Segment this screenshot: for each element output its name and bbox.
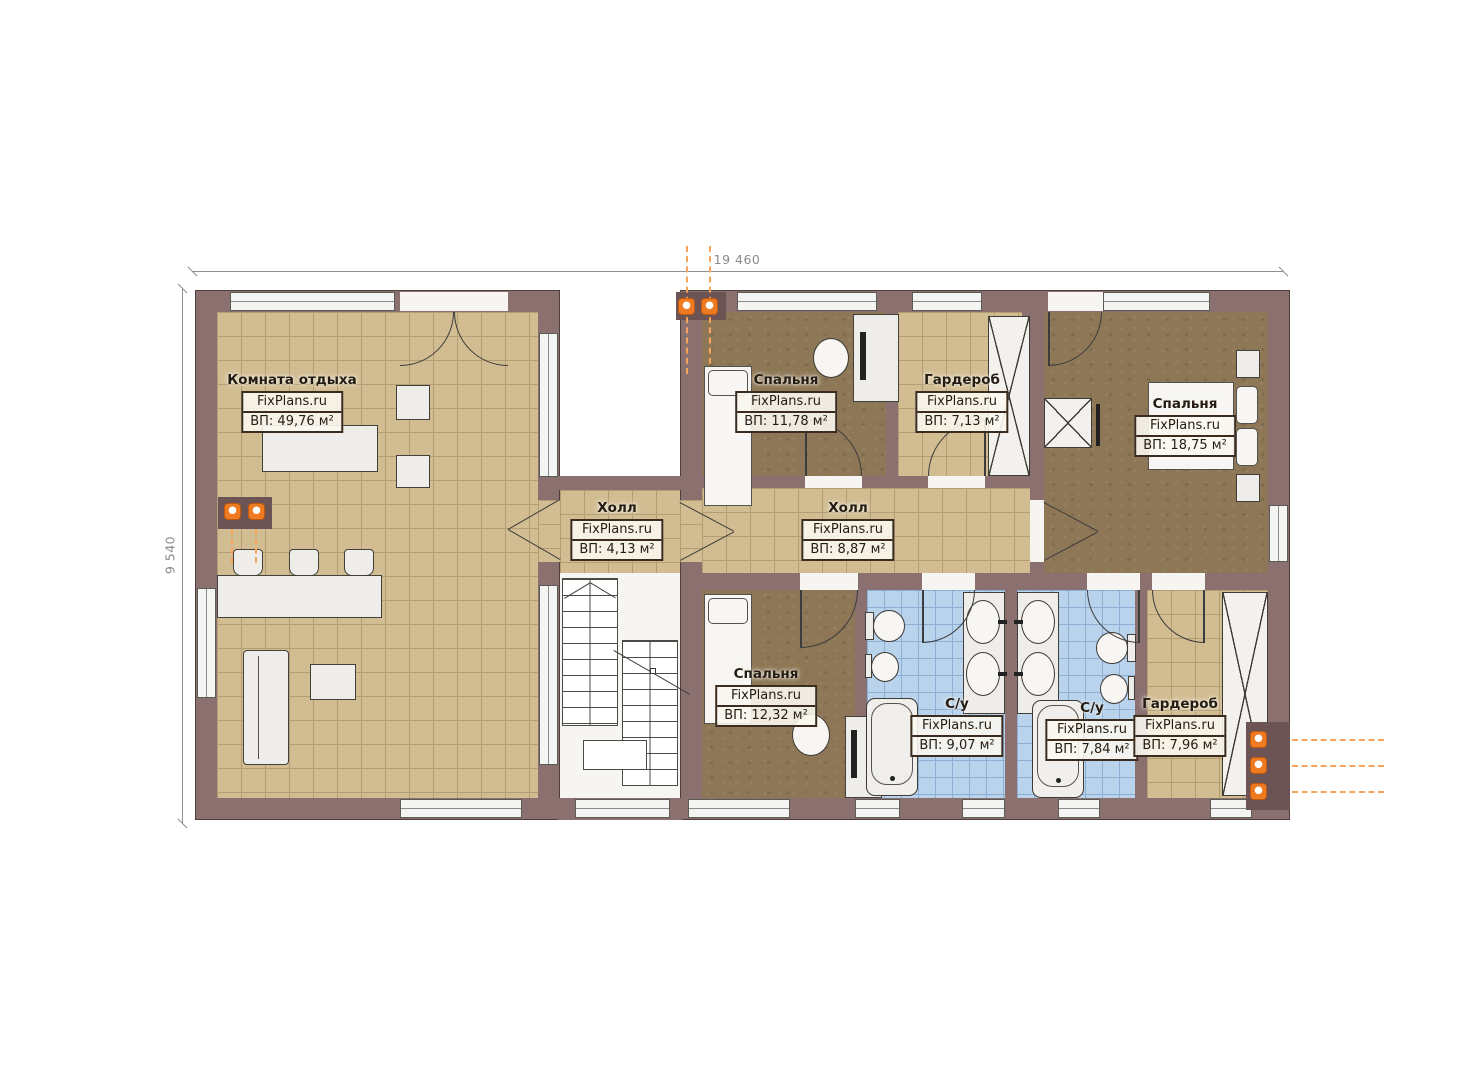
dimension-height-value: 9 540 xyxy=(163,536,178,574)
sink-icon xyxy=(1021,600,1055,644)
pillow xyxy=(1236,386,1258,424)
wall-lamp-icon xyxy=(248,503,265,520)
wall-lamp-icon xyxy=(678,298,695,315)
bar-stool xyxy=(344,549,374,576)
monitor-icon xyxy=(851,730,857,778)
connector-top-wall xyxy=(558,476,682,490)
door-leaf xyxy=(922,590,924,643)
door-opening xyxy=(922,573,975,590)
window xyxy=(575,799,670,818)
room-label-bedroom1: Спальня FixPlans.ru ВП: 11,78 м² xyxy=(735,372,837,433)
door-leaf xyxy=(800,590,802,648)
nightstand xyxy=(1236,474,1260,502)
room-name: Холл xyxy=(801,500,894,516)
room-name: Спальня xyxy=(1134,396,1236,412)
floor-plan-canvas: 19 460 9 540 xyxy=(0,0,1473,1080)
room-label-frame: FixPlans.ru ВП: 7,96 м² xyxy=(1133,715,1226,757)
watermark-fixplans: FixPlans.ru xyxy=(917,393,1006,413)
faucet-icon xyxy=(998,672,1007,676)
door-opening xyxy=(800,573,858,590)
room-area: ВП: 18,75 м² xyxy=(1136,437,1234,455)
door-opening xyxy=(928,476,985,488)
room-area: ВП: 49,76 м² xyxy=(243,413,341,431)
room-label-bath2: С/у FixPlans.ru ВП: 7,84 м² xyxy=(1045,700,1138,761)
room-label-lounge: Комната отдыха FixPlans.ru ВП: 49,76 м² xyxy=(227,372,356,433)
lamp-axis-dashed-line xyxy=(1292,791,1384,793)
window xyxy=(539,585,558,765)
room-label-bedroom2: Спальня FixPlans.ru ВП: 18,75 м² xyxy=(1134,396,1236,457)
room-name: Гардероб xyxy=(1133,696,1226,712)
window xyxy=(197,588,216,698)
room-label-wardrobe2: Гардероб FixPlans.ru ВП: 7,96 м² xyxy=(1133,696,1226,757)
room-label-frame: FixPlans.ru ВП: 8,87 м² xyxy=(801,519,894,561)
pillow xyxy=(708,598,748,624)
stair-flight xyxy=(562,578,618,726)
window xyxy=(1058,799,1100,818)
door-opening xyxy=(1087,573,1140,590)
window xyxy=(855,799,900,818)
window xyxy=(1269,505,1288,562)
sink-icon xyxy=(966,652,1000,696)
room-label-bedroom3: Спальня FixPlans.ru ВП: 12,32 м² xyxy=(715,666,817,727)
wall-lamp-icon xyxy=(701,298,718,315)
watermark-fixplans: FixPlans.ru xyxy=(243,393,341,413)
watermark-fixplans: FixPlans.ru xyxy=(717,687,815,707)
room-name: Спальня xyxy=(715,666,817,682)
door-opening xyxy=(400,292,508,311)
room-label-frame: FixPlans.ru ВП: 11,78 м² xyxy=(735,391,837,433)
door-leaf xyxy=(1203,590,1205,643)
door-opening xyxy=(1030,500,1044,562)
watermark-fixplans: FixPlans.ru xyxy=(803,521,892,541)
lamp-axis-dashed-line xyxy=(231,529,233,563)
vent-shaft xyxy=(1044,398,1092,448)
room-label-frame: FixPlans.ru ВП: 12,32 м² xyxy=(715,685,817,727)
room-label-frame: FixPlans.ru ВП: 7,13 м² xyxy=(915,391,1008,433)
room-name: Спальня xyxy=(735,372,837,388)
room-area: ВП: 4,13 м² xyxy=(572,541,661,559)
room-label-bath1: С/у FixPlans.ru ВП: 9,07 м² xyxy=(910,696,1003,757)
faucet-icon xyxy=(1014,620,1023,624)
monitor-icon xyxy=(860,332,866,380)
room-name: С/у xyxy=(910,696,1003,712)
dimension-line-left xyxy=(182,288,183,823)
bar-stool xyxy=(289,549,319,576)
room-area: ВП: 9,07 м² xyxy=(912,737,1001,755)
room-label-frame: FixPlans.ru ВП: 7,84 м² xyxy=(1045,719,1138,761)
room-label-frame: FixPlans.ru ВП: 49,76 м² xyxy=(241,391,343,433)
watermark-fixplans: FixPlans.ru xyxy=(912,717,1001,737)
watermark-fixplans: FixPlans.ru xyxy=(1135,717,1224,737)
room-label-frame: FixPlans.ru ВП: 4,13 м² xyxy=(570,519,663,561)
window xyxy=(737,292,877,311)
wall-lamp-icon xyxy=(1250,783,1267,800)
wall-lamp-icon xyxy=(224,503,241,520)
room-label-wardrobe1: Гардероб FixPlans.ru ВП: 7,13 м² xyxy=(915,372,1008,433)
room-label-hall2: Холл FixPlans.ru ВП: 8,87 м² xyxy=(801,500,894,561)
bathtub-inner xyxy=(871,703,913,785)
room-area: ВП: 12,32 м² xyxy=(717,707,815,725)
room-name: С/у xyxy=(1045,700,1138,716)
bathtub-drain xyxy=(890,776,895,781)
lamp-axis-dashed-line xyxy=(1292,765,1384,767)
bar-counter xyxy=(217,575,382,618)
stool-table xyxy=(396,455,430,488)
stool-table xyxy=(396,385,430,420)
sink-icon xyxy=(1021,652,1055,696)
wall-lamp-icon xyxy=(1250,731,1267,748)
toilet-icon xyxy=(873,610,905,642)
stair-landing xyxy=(583,740,647,770)
door-opening xyxy=(805,476,862,488)
door-leaf xyxy=(1138,590,1140,643)
room-area: ВП: 8,87 м² xyxy=(803,541,892,559)
tv-icon xyxy=(1096,404,1100,446)
nightstand xyxy=(1236,350,1260,378)
room-area: ВП: 7,96 м² xyxy=(1135,737,1224,755)
room-area: ВП: 11,78 м² xyxy=(737,413,835,431)
watermark-fixplans: FixPlans.ru xyxy=(1136,417,1234,437)
window xyxy=(688,799,790,818)
window xyxy=(962,799,1005,818)
watermark-fixplans: FixPlans.ru xyxy=(1047,721,1136,741)
room-label-frame: FixPlans.ru ВП: 18,75 м² xyxy=(1134,415,1236,457)
room-label-hall1: Холл FixPlans.ru ВП: 4,13 м² xyxy=(570,500,663,561)
room-name: Комната отдыха xyxy=(227,372,356,388)
window xyxy=(400,799,522,818)
window xyxy=(230,292,395,311)
faucet-icon xyxy=(998,620,1007,624)
room-name: Гардероб xyxy=(915,372,1008,388)
bathtub-drain xyxy=(1056,778,1061,783)
sofa-cushion-line xyxy=(258,656,259,759)
window xyxy=(1103,292,1210,311)
lamp-axis-dashed-line xyxy=(255,529,257,563)
dimension-width-value: 19 460 xyxy=(714,252,761,267)
bar-stool xyxy=(233,549,263,576)
pillow xyxy=(1236,428,1258,466)
room-name: Холл xyxy=(570,500,663,516)
room-label-frame: FixPlans.ru ВП: 9,07 м² xyxy=(910,715,1003,757)
watermark-fixplans: FixPlans.ru xyxy=(737,393,835,413)
bidet-icon xyxy=(871,652,899,682)
side-table xyxy=(310,664,356,700)
room-area: ВП: 7,13 м² xyxy=(917,413,1006,431)
stair-break-marker xyxy=(650,668,656,674)
door-opening xyxy=(1152,573,1205,590)
door-leaf xyxy=(1048,312,1050,366)
wall-lamp-icon xyxy=(1250,757,1267,774)
dimension-line-top xyxy=(192,271,1283,272)
window xyxy=(539,333,558,477)
watermark-fixplans: FixPlans.ru xyxy=(572,521,661,541)
room-area: ВП: 7,84 м² xyxy=(1047,741,1136,759)
sofa xyxy=(243,650,289,765)
window xyxy=(912,292,982,311)
door-opening xyxy=(1048,292,1103,311)
lamp-axis-dashed-line xyxy=(1292,739,1384,741)
faucet-icon xyxy=(1014,672,1023,676)
